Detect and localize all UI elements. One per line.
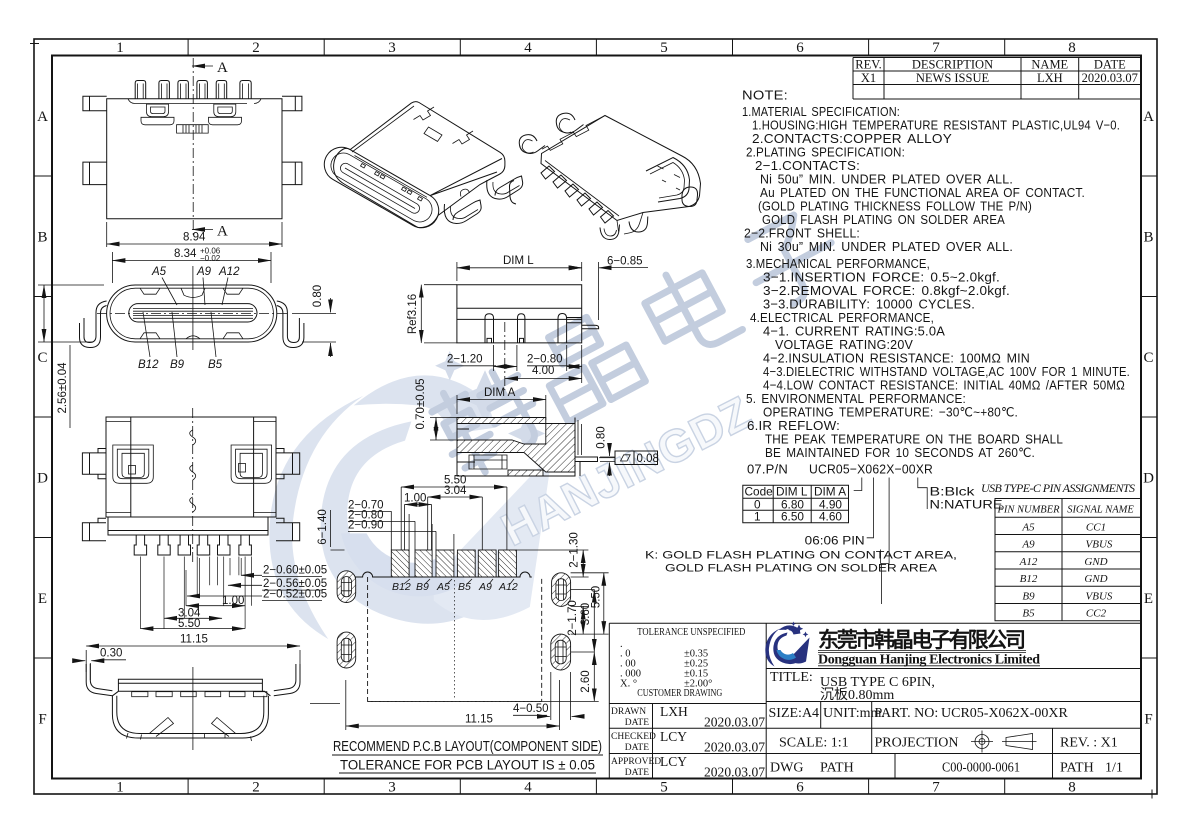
svg-text:沉板0.80mm: 沉板0.80mm <box>820 687 894 703</box>
svg-text:NOTE:: NOTE: <box>742 88 788 103</box>
svg-text:A12: A12 <box>218 266 240 278</box>
svg-text:DRAWN: DRAWN <box>611 707 646 717</box>
svg-text:GND: GND <box>1084 573 1107 585</box>
svg-text:Ni 30u” MIN. UNDER PLATED OVER: Ni 30u” MIN. UNDER PLATED OVER ALL. <box>760 239 1013 254</box>
svg-text:PROJECTION: PROJECTION <box>875 736 959 751</box>
svg-text:2−0.52±0.05: 2−0.52±0.05 <box>263 589 327 601</box>
svg-text:REV.: REV. <box>855 58 882 72</box>
svg-text:DATE: DATE <box>625 768 649 778</box>
svg-text:06:06 PIN: 06:06 PIN <box>805 534 865 548</box>
svg-text:07.P/N: 07.P/N <box>747 462 788 477</box>
svg-text:B5: B5 <box>458 581 471 593</box>
svg-text:CHECKED: CHECKED <box>611 732 656 742</box>
svg-text:E: E <box>1144 591 1153 607</box>
svg-text:BE MAINTAINED FOR 10 SECONDS A: BE MAINTAINED FOR 10 SECONDS AT 260℃. <box>765 445 1035 460</box>
svg-text:UCR05-X062X-00XR: UCR05-X062X-00XR <box>941 706 1068 721</box>
svg-text:2.56±0.04: 2.56±0.04 <box>57 362 69 414</box>
svg-text:2020.03.07: 2020.03.07 <box>1082 71 1138 85</box>
svg-text:DESCRIPTION: DESCRIPTION <box>912 58 993 72</box>
svg-text:D: D <box>1143 471 1154 487</box>
svg-text:X1: X1 <box>861 71 876 85</box>
svg-text:DATE: DATE <box>1094 58 1126 72</box>
svg-text:CC1: CC1 <box>1086 522 1106 534</box>
svg-text:0.30: 0.30 <box>100 648 122 660</box>
svg-text:USB TYPE-C PIN ASSIGNMENTS: USB TYPE-C PIN ASSIGNMENTS <box>981 481 1135 495</box>
svg-text:1: 1 <box>116 780 124 796</box>
svg-text:2−1.20: 2−1.20 <box>447 354 483 366</box>
svg-text:DIM A: DIM A <box>484 387 516 399</box>
svg-text:DIM L: DIM L <box>503 255 534 267</box>
svg-text:D: D <box>37 471 48 487</box>
svg-text:A5: A5 <box>1021 522 1035 534</box>
svg-text:SCALE: 1:1: SCALE: 1:1 <box>779 736 849 751</box>
svg-text:C: C <box>37 350 47 366</box>
svg-text:1.00: 1.00 <box>404 493 426 505</box>
svg-text:PART. NO:: PART. NO: <box>875 706 939 721</box>
svg-text:5.50: 5.50 <box>178 618 200 630</box>
svg-text:0.80: 0.80 <box>312 285 324 307</box>
svg-text:0.80: 0.80 <box>596 426 608 448</box>
svg-text:8: 8 <box>1068 40 1076 56</box>
svg-text:B9: B9 <box>170 359 185 371</box>
svg-text:REV. : X1: REV. : X1 <box>1060 736 1118 751</box>
svg-text:1/1: 1/1 <box>1105 761 1123 776</box>
svg-text:LCY: LCY <box>660 754 687 769</box>
svg-text:Dongguan Hanjing Electronics L: Dongguan Hanjing Electronics Limited <box>818 653 1040 668</box>
svg-text:C00-0000-0061: C00-0000-0061 <box>942 761 1020 776</box>
svg-text:2−0.60±0.05: 2−0.60±0.05 <box>263 565 327 577</box>
svg-text:A: A <box>37 109 48 125</box>
svg-text:5: 5 <box>660 780 668 796</box>
svg-text:X. °: X. ° <box>620 679 637 690</box>
svg-text:RECOMMEND P.C.B LAYOUT(COMPONE: RECOMMEND P.C.B LAYOUT(COMPONENT SIDE) <box>333 739 602 755</box>
svg-text:A9: A9 <box>1021 539 1035 551</box>
svg-text:6: 6 <box>796 40 804 56</box>
svg-text:2.60: 2.60 <box>580 670 592 692</box>
svg-text:B: B <box>37 230 47 246</box>
svg-text:GOLD FLASH PLATING ON SOLDER A: GOLD FLASH PLATING ON SOLDER AREA <box>665 563 938 575</box>
svg-text:LCY: LCY <box>660 729 687 744</box>
svg-text:5.50: 5.50 <box>591 586 603 608</box>
svg-text:PIN NUMBER: PIN NUMBER <box>996 505 1060 516</box>
svg-text:TOLERANCE FOR PCB LAYOUT IS ±: TOLERANCE FOR PCB LAYOUT IS ± 0.05 <box>340 758 595 773</box>
svg-text:B9: B9 <box>1022 591 1035 603</box>
svg-text:2020.03.07: 2020.03.07 <box>704 740 765 755</box>
svg-text:2020.03.07: 2020.03.07 <box>704 765 765 780</box>
svg-text:F: F <box>38 712 46 728</box>
svg-text:DATE: DATE <box>625 743 649 753</box>
svg-text:B12: B12 <box>392 581 411 593</box>
svg-text:NAME: NAME <box>1031 58 1068 72</box>
svg-text:−0.02: −0.02 <box>200 254 221 263</box>
svg-text:GND: GND <box>1084 556 1107 568</box>
svg-text:0.70±0.05: 0.70±0.05 <box>415 378 427 429</box>
svg-text:5: 5 <box>660 40 668 56</box>
svg-text:TITLE:: TITLE: <box>770 670 813 685</box>
svg-text:Ref3.16: Ref3.16 <box>407 294 419 334</box>
svg-text:6.50: 6.50 <box>781 509 804 523</box>
svg-text:4: 4 <box>524 40 532 56</box>
svg-text:B5: B5 <box>208 359 223 371</box>
svg-text:2020.03.07: 2020.03.07 <box>704 715 765 730</box>
svg-text:3: 3 <box>388 40 396 56</box>
svg-text:N:NATURE: N:NATURE <box>930 498 1003 512</box>
svg-text:6: 6 <box>796 780 804 796</box>
svg-text:VBUS: VBUS <box>1086 539 1113 551</box>
svg-text:A12: A12 <box>498 581 518 593</box>
svg-text:B5: B5 <box>1022 608 1035 620</box>
svg-text:8.94: 8.94 <box>183 232 206 244</box>
svg-text:A: A <box>217 224 228 240</box>
svg-text:2−0.80: 2−0.80 <box>527 354 563 366</box>
svg-text:A12: A12 <box>1019 556 1038 568</box>
svg-text:F: F <box>1144 712 1152 728</box>
svg-text:2−0.90: 2−0.90 <box>348 519 384 531</box>
svg-text:3: 3 <box>388 780 396 796</box>
svg-text:6−1.40: 6−1.40 <box>317 509 329 545</box>
svg-text:8: 8 <box>1068 780 1076 796</box>
svg-text:4−0.50: 4−0.50 <box>513 703 549 715</box>
svg-text:LXH: LXH <box>1037 71 1063 85</box>
svg-text:PATH: PATH <box>820 761 854 776</box>
svg-text:7: 7 <box>932 40 940 56</box>
svg-text:4: 4 <box>524 780 532 796</box>
svg-text:DATE: DATE <box>625 718 649 728</box>
svg-text:2: 2 <box>252 780 260 796</box>
svg-text:A5: A5 <box>151 266 167 278</box>
svg-text:0.08: 0.08 <box>637 453 659 465</box>
svg-text:A: A <box>217 60 228 76</box>
svg-text:PATH: PATH <box>1060 761 1094 776</box>
svg-text:1: 1 <box>116 40 124 56</box>
svg-text:4.60: 4.60 <box>819 509 842 523</box>
svg-text:CC2: CC2 <box>1086 608 1107 620</box>
svg-text:7: 7 <box>932 780 940 796</box>
svg-text:K: GOLD FLASH PLATING ON CONT: K: GOLD FLASH PLATING ON CONTACT AREA, <box>645 550 957 562</box>
svg-text:2: 2 <box>252 40 260 56</box>
svg-text:DWG: DWG <box>770 761 803 776</box>
svg-text:VBUS: VBUS <box>1086 591 1113 603</box>
svg-text:1.00: 1.00 <box>222 595 244 607</box>
svg-text:B12: B12 <box>138 359 159 371</box>
svg-text:6−0.85: 6−0.85 <box>607 256 643 268</box>
svg-text:SIZE:A4: SIZE:A4 <box>769 706 820 721</box>
svg-text:NEWS ISSUE: NEWS ISSUE <box>916 71 990 85</box>
svg-text:B12: B12 <box>1020 573 1038 585</box>
svg-text:11.15: 11.15 <box>180 634 208 646</box>
svg-text:CUSTOMER DRAWING: CUSTOMER DRAWING <box>637 688 722 699</box>
svg-text:E: E <box>38 591 47 607</box>
svg-text:A: A <box>1143 109 1154 125</box>
svg-text:TOLERANCE UNSPECIFIED: TOLERANCE UNSPECIFIED <box>637 627 745 638</box>
svg-text:4.00: 4.00 <box>532 365 554 377</box>
svg-text:3.04: 3.04 <box>444 485 467 497</box>
svg-text:2−1.70: 2−1.70 <box>567 600 579 636</box>
svg-text:UCR05−X062X−00XR: UCR05−X062X−00XR <box>809 462 933 477</box>
svg-text:A9: A9 <box>196 266 212 278</box>
svg-text:APPROVED: APPROVED <box>611 757 661 767</box>
svg-text:SIGNAL NAME: SIGNAL NAME <box>1067 505 1134 516</box>
svg-text:C: C <box>1143 350 1153 366</box>
svg-text:B:Blck: B:Blck <box>930 485 976 499</box>
svg-text:1: 1 <box>754 509 761 523</box>
svg-text:11.15: 11.15 <box>465 714 493 726</box>
svg-text:东莞市韩晶电子有限公司: 东莞市韩晶电子有限公司 <box>818 628 1026 652</box>
svg-text:LXH: LXH <box>660 704 688 719</box>
svg-text:B: B <box>1143 230 1153 246</box>
svg-text:8.34: 8.34 <box>174 248 197 260</box>
svg-text:B9: B9 <box>416 581 429 593</box>
